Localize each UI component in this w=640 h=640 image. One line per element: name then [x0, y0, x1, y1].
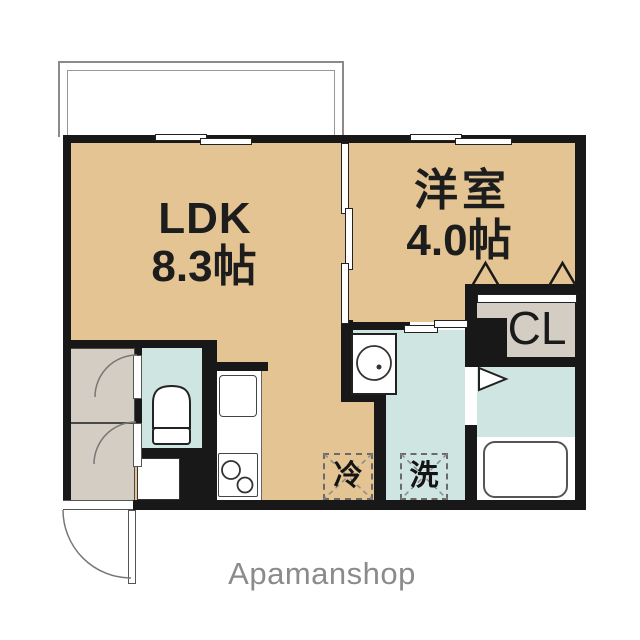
stove-icon [218, 453, 258, 497]
wall-ldk-entrance [63, 340, 217, 348]
washroom-sliding-door-panel-2 [434, 320, 468, 328]
ldk-label: LDK [140, 197, 270, 241]
bedroom-floor-lower [353, 284, 465, 322]
washer-label: 洗 [400, 453, 448, 500]
bedroom-size-label: 4.0帖 [394, 218, 524, 264]
wall-kitchen-top [205, 362, 268, 371]
outer-wall-bottom [133, 500, 586, 510]
toilet-floor [142, 348, 202, 448]
ldk-size-label: 8.3帖 [139, 244, 269, 290]
toilet-door-leaf [133, 355, 142, 399]
wall-bedroom-washroom [341, 322, 410, 330]
balcony-inner-line [67, 70, 335, 137]
washroom-sliding-door-panel-1 [404, 325, 438, 333]
floor-plan: LDK 8.3帖 洋室 4.0帖 CL 冷 洗 Apamanshop [0, 0, 640, 640]
closet-label: CL [489, 305, 585, 350]
bedroom-window-icon-2 [455, 138, 512, 146]
bathroom-floor [477, 367, 575, 437]
wall-washroom-step-v [374, 392, 386, 500]
refrigerator-label: 冷 [323, 453, 373, 500]
sliding-partition-panel-1 [341, 143, 349, 214]
sliding-partition-panel-2 [345, 208, 353, 270]
brand-text: Apamanshop [160, 557, 484, 589]
entrance-closet-door-leaf [133, 423, 142, 467]
entrance-floor [70, 348, 135, 502]
washbasin-counter [351, 333, 397, 395]
front-door-swing-icon [63, 510, 131, 578]
front-door-opening [63, 500, 133, 510]
utility-box [137, 458, 180, 500]
bedroom-label: 洋室 [397, 168, 527, 214]
bathtub-icon [483, 441, 568, 498]
entrance-divider-line [70, 422, 135, 424]
wall-bathroom-left-lower [465, 425, 477, 500]
sliding-partition-panel-3 [341, 263, 349, 324]
ldk-window-icon-2 [200, 138, 252, 146]
outer-wall-left [63, 135, 71, 502]
bathroom-door-opening [465, 367, 477, 425]
kitchen-sink-icon [219, 375, 257, 417]
wall-closet-bottom [465, 357, 577, 367]
wall-kitchen-left [205, 371, 217, 500]
front-door-leaf [128, 510, 136, 584]
wall-closet-top [465, 284, 577, 294]
